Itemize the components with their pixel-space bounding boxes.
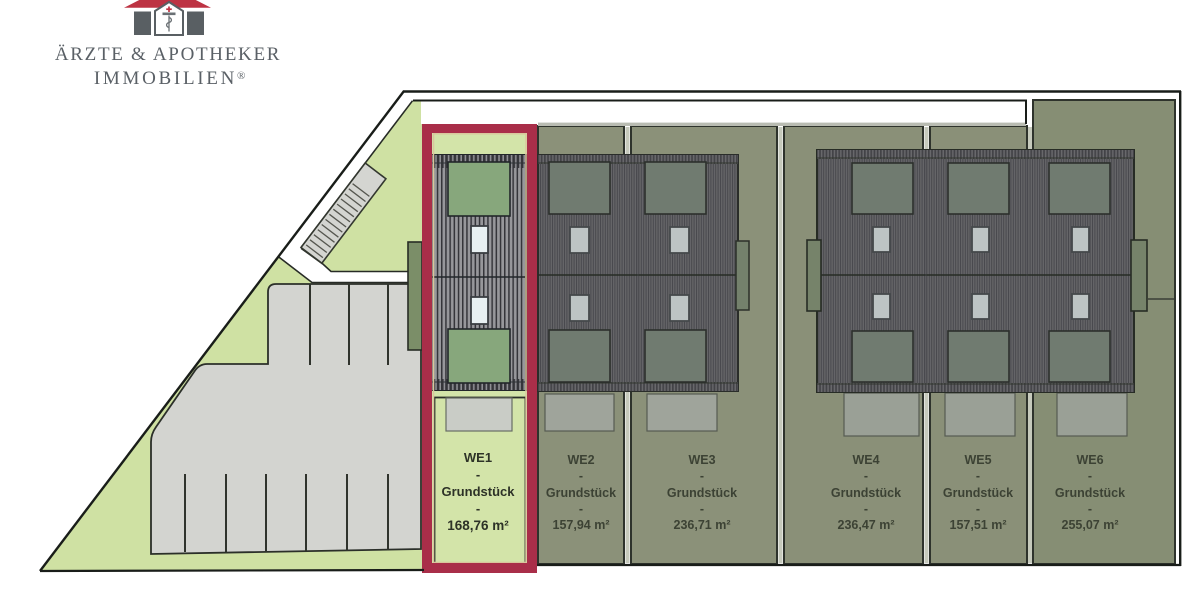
svg-text:IMMOBILIEN®: IMMOBILIEN®: [94, 68, 248, 89]
svg-text:157,94 m²: 157,94 m²: [553, 518, 610, 532]
svg-text:-: -: [700, 469, 704, 483]
svg-text:168,76 m²: 168,76 m²: [447, 518, 509, 533]
svg-text:-: -: [864, 502, 868, 516]
svg-text:WE1: WE1: [464, 450, 492, 465]
svg-text:Grundstück: Grundstück: [442, 484, 516, 499]
svg-text:157,51 m²: 157,51 m²: [950, 518, 1007, 532]
svg-text:-: -: [976, 469, 980, 483]
svg-text:-: -: [579, 502, 583, 516]
svg-text:236,47 m²: 236,47 m²: [838, 518, 895, 532]
svg-text:-: -: [700, 502, 704, 516]
svg-text:-: -: [476, 467, 480, 482]
svg-text:WE4: WE4: [852, 453, 879, 467]
svg-text:-: -: [864, 469, 868, 483]
svg-text:Grundstück: Grundstück: [546, 486, 616, 500]
svg-text:-: -: [579, 469, 583, 483]
svg-text:-: -: [1088, 469, 1092, 483]
svg-text:Grundstück: Grundstück: [1055, 486, 1125, 500]
svg-text:WE3: WE3: [688, 453, 715, 467]
svg-text:236,71 m²: 236,71 m²: [674, 518, 731, 532]
svg-text:WE5: WE5: [964, 453, 991, 467]
svg-text:Grundstück: Grundstück: [667, 486, 737, 500]
svg-text:-: -: [476, 501, 480, 516]
svg-text:-: -: [976, 502, 980, 516]
svg-text:WE2: WE2: [567, 453, 594, 467]
svg-text:ÄRZTE & APOTHEKER: ÄRZTE & APOTHEKER: [55, 44, 281, 65]
svg-text:Grundstück: Grundstück: [831, 486, 901, 500]
svg-text:WE6: WE6: [1076, 453, 1103, 467]
svg-text:-: -: [1088, 502, 1092, 516]
svg-text:Grundstück: Grundstück: [943, 486, 1013, 500]
svg-text:255,07 m²: 255,07 m²: [1062, 518, 1119, 532]
